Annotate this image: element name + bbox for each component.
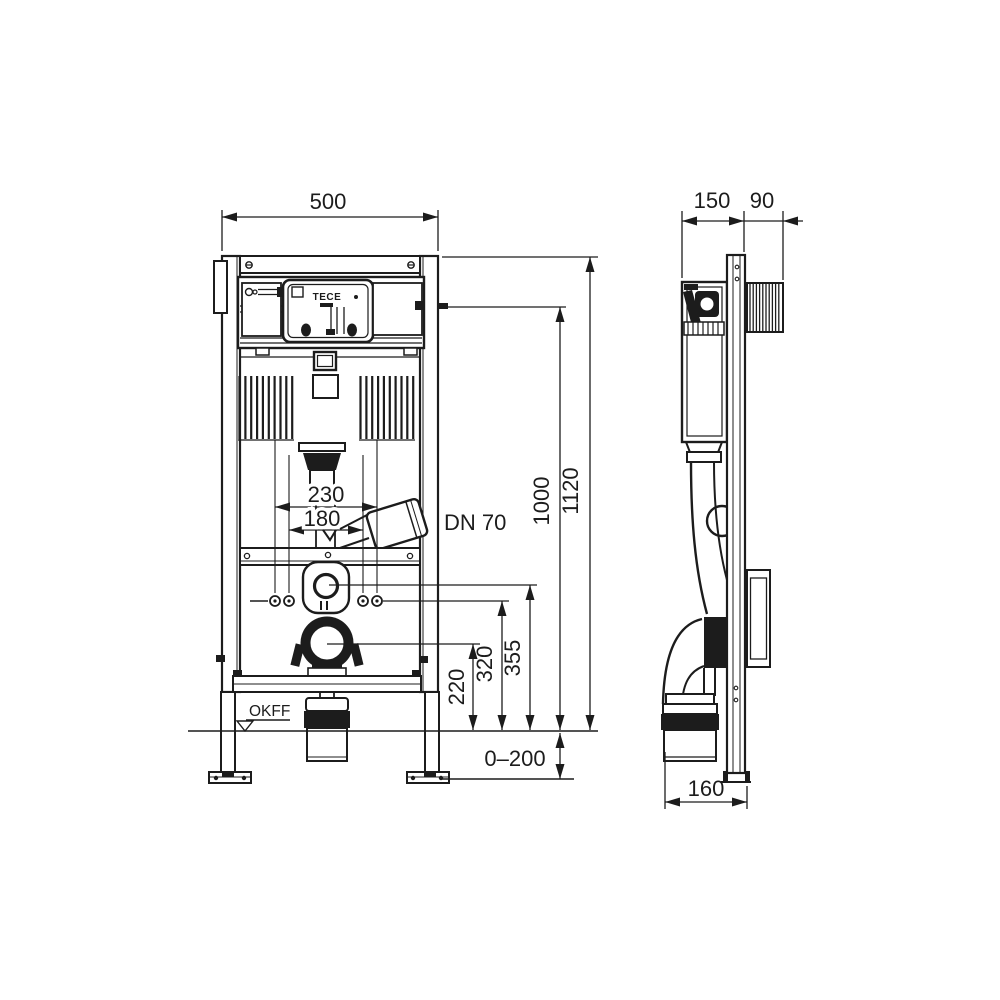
dim-drain-axis-height-label: 220 bbox=[444, 669, 469, 706]
drain-connection-ring bbox=[290, 617, 363, 677]
dim-flush-outlet-height: 355 bbox=[500, 585, 535, 730]
right-foot bbox=[407, 772, 449, 783]
left-leg bbox=[221, 692, 235, 772]
wc-connection-block bbox=[704, 617, 728, 668]
inspection-window: TECE bbox=[283, 280, 373, 342]
dim-foot-adjust-range-label: 0–200 bbox=[484, 746, 545, 771]
service-opening bbox=[313, 375, 338, 398]
floor-level-marker: OKFF bbox=[237, 703, 290, 731]
dim-flush-outlet-height-label: 355 bbox=[500, 640, 525, 677]
wall-anchor-block bbox=[747, 283, 783, 332]
dim-outlet-offset-label: 160 bbox=[688, 776, 725, 801]
dim-fixing-inner-label: 180 bbox=[304, 506, 341, 531]
grille-right bbox=[359, 376, 415, 440]
supply-connector-icon bbox=[246, 289, 253, 296]
wc-fixing-plate bbox=[747, 570, 770, 667]
dim-foot-adjust-range: 0–200 bbox=[440, 733, 574, 779]
right-leg bbox=[425, 692, 439, 772]
reference-mark bbox=[439, 303, 448, 309]
flush-bend-outlet bbox=[303, 562, 349, 613]
left-foot bbox=[209, 772, 251, 783]
dim-fixing-outer-label: 230 bbox=[308, 482, 345, 507]
side-view bbox=[661, 255, 783, 782]
dim-bracket-depth-label: 90 bbox=[750, 188, 774, 213]
floor-level-label: OKFF bbox=[249, 703, 290, 720]
left-wall-bracket bbox=[214, 261, 227, 313]
drain-pipe-label: DN 70 bbox=[444, 510, 506, 535]
grille-left bbox=[238, 376, 294, 440]
cistern-right-section bbox=[373, 283, 422, 335]
dim-frame-width-label: 500 bbox=[310, 189, 347, 214]
wc-installation-frame-drawing: TECE bbox=[0, 0, 1000, 1000]
drawing-page: TECE bbox=[0, 0, 1000, 1000]
brand-logo: TECE bbox=[313, 292, 342, 303]
dim-frame-depth-label: 150 bbox=[694, 188, 731, 213]
top-cross-member bbox=[240, 256, 420, 273]
drain-pipe-bottom bbox=[304, 692, 350, 761]
dim-frame-width: 500 bbox=[222, 189, 438, 251]
dim-rod-exit-height-label: 320 bbox=[472, 646, 497, 683]
dim-total-height-label: 1120 bbox=[558, 467, 583, 514]
dim-upper-height-label: 1000 bbox=[529, 477, 554, 526]
cistern-side bbox=[682, 282, 727, 442]
